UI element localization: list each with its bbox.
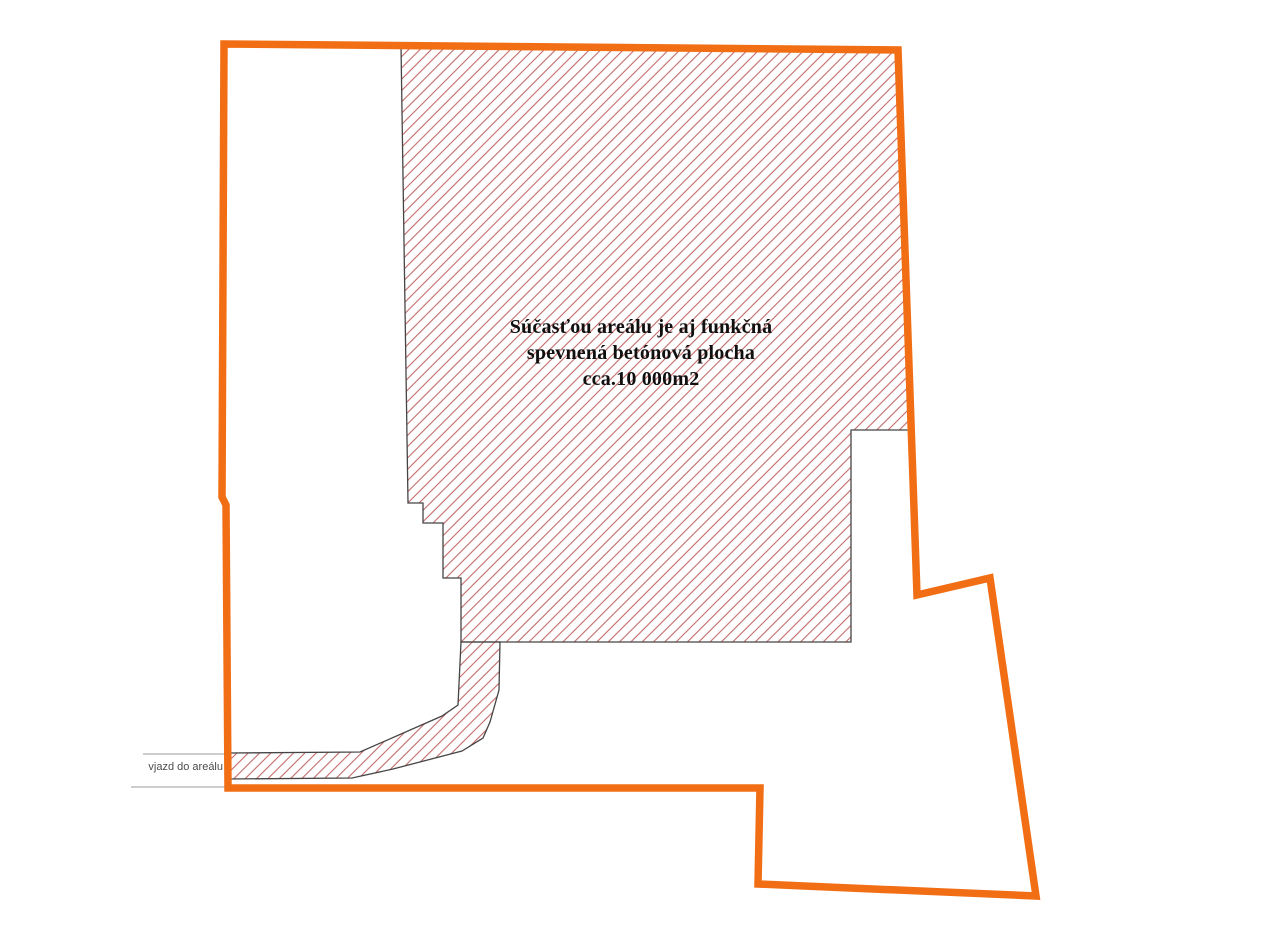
annotation-line-2: spevnená betónová plocha bbox=[416, 340, 866, 366]
annotation-line-1: Súčasťou areálu je aj funkčná bbox=[416, 314, 866, 340]
site-plan-canvas: Súčasťou areálu je aj funkčná spevnená b… bbox=[0, 0, 1266, 945]
entrance-label: vjazd do areálu bbox=[96, 761, 223, 773]
site-plan-drawing bbox=[0, 0, 1266, 945]
annotation-line-3: cca.10 000m2 bbox=[416, 366, 866, 392]
concrete-area-annotation: Súčasťou areálu je aj funkčná spevnená b… bbox=[416, 314, 866, 392]
driveway-polygon bbox=[228, 642, 500, 779]
